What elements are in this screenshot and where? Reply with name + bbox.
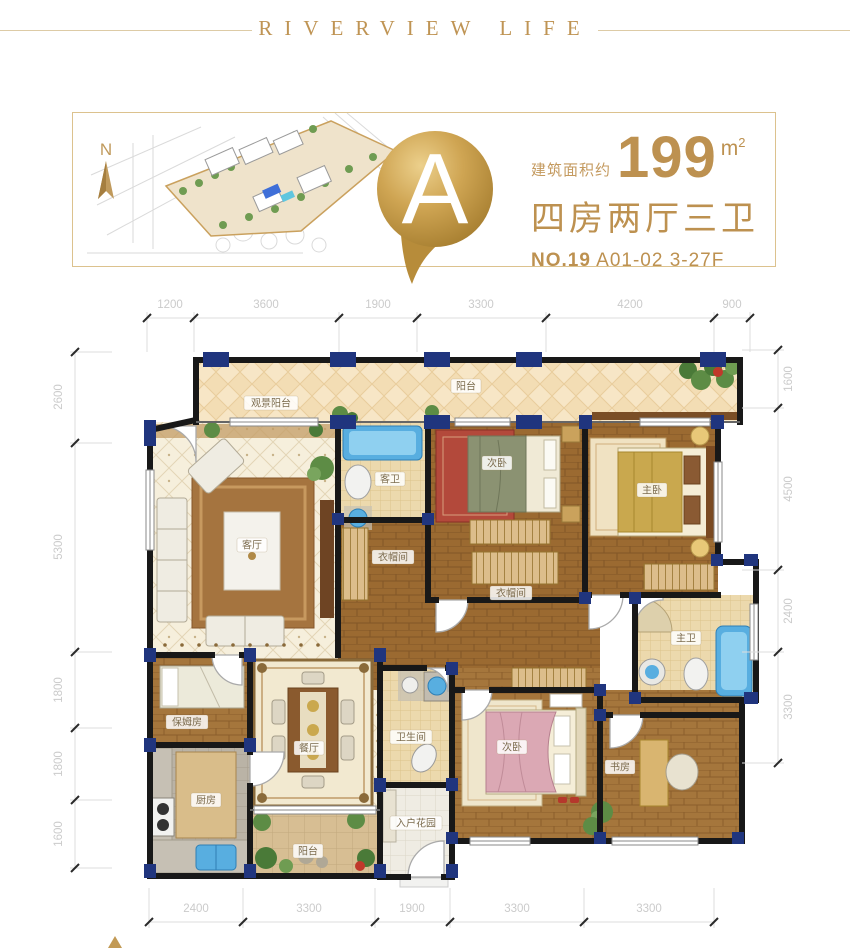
corner-arrow-icon [108,936,122,948]
chair-icon [272,700,285,724]
label-nanny: 保姆房 [172,716,202,729]
dim-label: 1200 [157,299,183,311]
lamp-icon [691,539,709,557]
dim-label: 3300 [636,903,662,915]
chair-icon [341,700,354,724]
nightstand-icon [562,506,580,522]
sink-icon [402,677,418,693]
dim-label: 1900 [365,299,391,311]
label-closet2: 衣帽间 [496,587,526,600]
slippers-icon [558,797,567,803]
dim-label: 1600 [783,366,795,392]
chair-icon [302,776,324,788]
plant-icon [255,847,277,869]
label-kitchen: 厨房 [196,794,216,807]
nightstand-icon [562,426,580,442]
dim-label: 2400 [783,598,795,624]
dim-label: 1600 [53,821,65,847]
dim-label: 4200 [617,299,643,311]
chair-icon [341,736,354,760]
dim-label: 1800 [53,751,65,777]
master-door [589,595,623,629]
dresser-icon [550,694,582,707]
dim-label: 3300 [468,299,494,311]
wardrobe-icon [472,552,558,584]
flower-icon [713,367,723,377]
badge-letter: A [402,133,469,245]
label-guest-bath: 客卫 [380,473,400,486]
dim-label: 3300 [296,903,322,915]
label-bedroom2: 次卧 [487,457,507,470]
kitchen-furniture [152,748,248,873]
chair-icon [302,672,324,684]
label-dining: 餐厅 [299,742,319,755]
floorplan-poster: RIVERVIEW LIFE [0,0,850,948]
label-balcony-view: 观景阳台 [251,397,291,410]
lamp-icon [691,427,709,445]
toilet-icon [345,465,371,499]
dim-label: 1900 [399,903,425,915]
dim-label: 4500 [783,476,795,502]
label-master-bath: 主卫 [676,633,696,645]
wardrobe-icon [644,564,714,590]
label-study: 书房 [610,761,630,774]
dim-label: 5300 [53,534,65,560]
dim-label: 3600 [253,299,279,311]
dim-label: 3300 [783,694,795,720]
label-patio: 阳台 [298,845,318,858]
label-balcony: 阳台 [456,380,476,393]
dining-furniture [254,660,372,806]
toilet-icon [684,658,708,690]
flower-icon [355,861,365,871]
chair-icon [666,754,698,790]
closet-shelf-icon [342,528,368,600]
label-bath2: 卫生间 [396,731,426,744]
label-bedroom3: 次卧 [502,741,522,754]
wardrobe-icon [470,520,550,544]
label-living: 客厅 [242,539,262,552]
unit-badge: A [372,110,498,290]
label-closet1: 衣帽间 [378,551,408,564]
tv-cabinet-icon [320,500,334,618]
dim-label: 2400 [183,903,209,915]
dim-label: 3300 [504,903,530,915]
dim-label: 1800 [53,677,65,703]
dim-label: 900 [722,299,741,311]
label-master: 主卧 [642,484,662,497]
desk-icon [640,740,668,806]
label-entry: 入户花园 [396,817,436,830]
dim-label: 2600 [53,384,65,410]
plant-icon [253,813,271,831]
